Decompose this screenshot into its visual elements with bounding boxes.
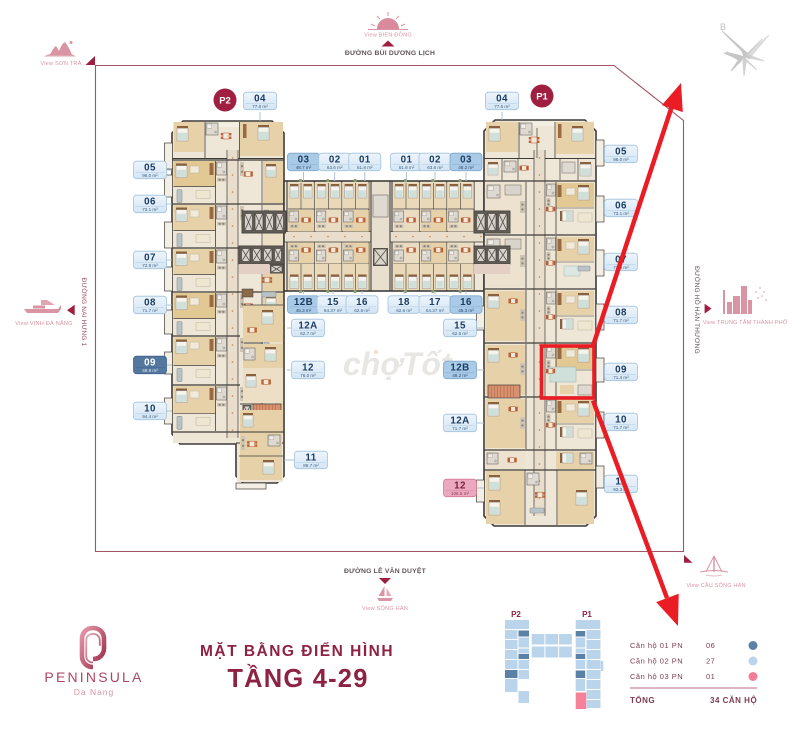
svg-text:01: 01 — [706, 672, 715, 681]
svg-text:15: 15 — [454, 320, 466, 331]
svg-text:01: 01 — [359, 154, 371, 165]
svg-text:62.6 m²: 62.6 m² — [354, 308, 370, 313]
svg-text:63.6 m²: 63.6 m² — [327, 165, 343, 170]
svg-text:62.7 m²: 62.7 m² — [300, 331, 316, 336]
svg-text:12B: 12B — [450, 362, 469, 373]
svg-text:71.7 m²: 71.7 m² — [142, 308, 158, 313]
svg-text:72.9 m²: 72.9 m² — [142, 263, 158, 268]
svg-text:03: 03 — [298, 154, 310, 165]
svg-text:09: 09 — [615, 364, 627, 375]
svg-text:08: 08 — [615, 307, 627, 318]
svg-text:MẶT BẰNG ĐIỂN HÌNH: MẶT BẰNG ĐIỂN HÌNH — [200, 642, 394, 660]
svg-text:09: 09 — [144, 357, 156, 368]
svg-text:18: 18 — [398, 297, 410, 308]
svg-text:P1: P1 — [536, 92, 548, 103]
svg-text:02: 02 — [429, 154, 441, 165]
svg-text:62.6 m²: 62.6 m² — [452, 331, 468, 336]
svg-text:02: 02 — [329, 154, 341, 165]
svg-text:61.8 m²: 61.8 m² — [357, 165, 373, 170]
svg-text:10: 10 — [615, 414, 627, 425]
svg-text:Da Nang: Da Nang — [74, 687, 115, 697]
svg-text:73.1 m²: 73.1 m² — [142, 207, 158, 212]
svg-text:06: 06 — [144, 196, 156, 207]
svg-text:TẦNG 4-29: TẦNG 4-29 — [227, 664, 368, 693]
svg-text:Căn hộ 01 PN: Căn hộ 01 PN — [630, 641, 683, 650]
svg-text:76.0 m²: 76.0 m² — [300, 373, 316, 378]
svg-text:71.7 m²: 71.7 m² — [452, 426, 468, 431]
svg-text:96.0 m²: 96.0 m² — [142, 173, 158, 178]
svg-text:TỔNG: TỔNG — [630, 696, 655, 705]
svg-text:08: 08 — [144, 297, 156, 308]
svg-text:73.1 m²: 73.1 m² — [613, 211, 629, 216]
svg-text:64.37 m²: 64.37 m² — [324, 308, 343, 313]
svg-text:06: 06 — [615, 200, 627, 211]
svg-text:View SÔNG HÀN: View SÔNG HÀN — [362, 605, 408, 612]
svg-text:ĐƯỜNG LÊ VĂN DUYỆT: ĐƯỜNG LÊ VĂN DUYỆT — [344, 566, 427, 575]
svg-text:77.6 m²: 77.6 m² — [494, 104, 510, 109]
svg-text:Căn hộ 02 PN: Căn hộ 02 PN — [630, 657, 683, 666]
svg-text:B: B — [720, 22, 726, 32]
svg-text:71.4 m²: 71.4 m² — [613, 375, 629, 380]
svg-text:12A: 12A — [298, 320, 317, 331]
svg-text:94.4 m²: 94.4 m² — [142, 414, 158, 419]
svg-text:03: 03 — [460, 154, 472, 165]
svg-text:16: 16 — [356, 297, 368, 308]
svg-text:106.5 m²: 106.5 m² — [451, 491, 470, 496]
svg-text:12B: 12B — [294, 297, 313, 308]
svg-text:48.2 m²: 48.2 m² — [452, 373, 468, 378]
svg-text:62.6 m²: 62.6 m² — [396, 308, 412, 313]
svg-text:07: 07 — [144, 252, 156, 263]
svg-text:64.37 m²: 64.37 m² — [426, 308, 445, 313]
svg-text:View SƠN TRÀ: View SƠN TRÀ — [40, 60, 81, 67]
svg-text:17: 17 — [429, 297, 441, 308]
svg-text:Căn hộ 03 PN: Căn hộ 03 PN — [630, 672, 683, 681]
svg-text:45.3 m²: 45.3 m² — [458, 308, 474, 313]
svg-text:96.0 m²: 96.0 m² — [613, 157, 629, 162]
svg-text:12: 12 — [454, 480, 466, 491]
svg-text:05: 05 — [615, 146, 627, 157]
svg-text:View BIỂN ĐÔNG: View BIỂN ĐÔNG — [364, 32, 412, 39]
svg-text:71.7 m²: 71.7 m² — [613, 318, 629, 323]
svg-text:ĐƯỜNG BÙI DƯƠNG LỊCH: ĐƯỜNG BÙI DƯƠNG LỊCH — [345, 48, 435, 57]
svg-text:ĐƯỜNG HỒ HÀN THƯƠNG: ĐƯỜNG HỒ HÀN THƯƠNG — [693, 266, 703, 354]
svg-text:06: 06 — [706, 641, 715, 650]
svg-text:P2: P2 — [511, 610, 521, 619]
svg-text:61.8 m²: 61.8 m² — [399, 165, 415, 170]
svg-text:05: 05 — [144, 162, 156, 173]
svg-text:34 CĂN HỘ: 34 CĂN HỘ — [710, 696, 757, 705]
svg-text:10: 10 — [144, 403, 156, 414]
svg-text:04: 04 — [254, 94, 266, 105]
svg-text:12: 12 — [302, 362, 314, 373]
svg-text:11: 11 — [305, 452, 316, 463]
svg-text:P1: P1 — [582, 610, 592, 619]
svg-text:View CẦU SÔNG HÀN: View CẦU SÔNG HÀN — [686, 582, 745, 589]
svg-text:chợTốt: chợTốt — [343, 346, 453, 382]
svg-text:27: 27 — [706, 657, 715, 666]
svg-text:04: 04 — [496, 94, 508, 105]
svg-text:45.3 m²: 45.3 m² — [296, 308, 312, 313]
svg-text:P2: P2 — [219, 96, 231, 107]
svg-text:View VỊNH ĐÀ NẴNG: View VỊNH ĐÀ NẴNG — [15, 320, 72, 327]
svg-text:71.7 m²: 71.7 m² — [613, 425, 629, 430]
svg-text:16: 16 — [460, 297, 472, 308]
svg-text:48.7 m²: 48.7 m² — [296, 165, 312, 170]
svg-text:63.6 m²: 63.6 m² — [427, 165, 443, 170]
svg-text:89.7 m²: 89.7 m² — [303, 463, 319, 468]
svg-text:77.6 m²: 77.6 m² — [252, 104, 268, 109]
svg-text:ĐƯỜNG NẠI HƯNG 1: ĐƯỜNG NẠI HƯNG 1 — [80, 278, 89, 347]
svg-text:View TRUNG TÂM THÀNH PHỐ: View TRUNG TÂM THÀNH PHỐ — [703, 319, 788, 326]
svg-text:48.2 m²: 48.2 m² — [458, 165, 474, 170]
svg-text:49.9 m²: 49.9 m² — [142, 368, 158, 373]
svg-text:12A: 12A — [450, 415, 469, 426]
svg-text:PENINSULA: PENINSULA — [44, 669, 143, 685]
svg-text:01: 01 — [401, 154, 413, 165]
svg-text:15: 15 — [327, 297, 339, 308]
